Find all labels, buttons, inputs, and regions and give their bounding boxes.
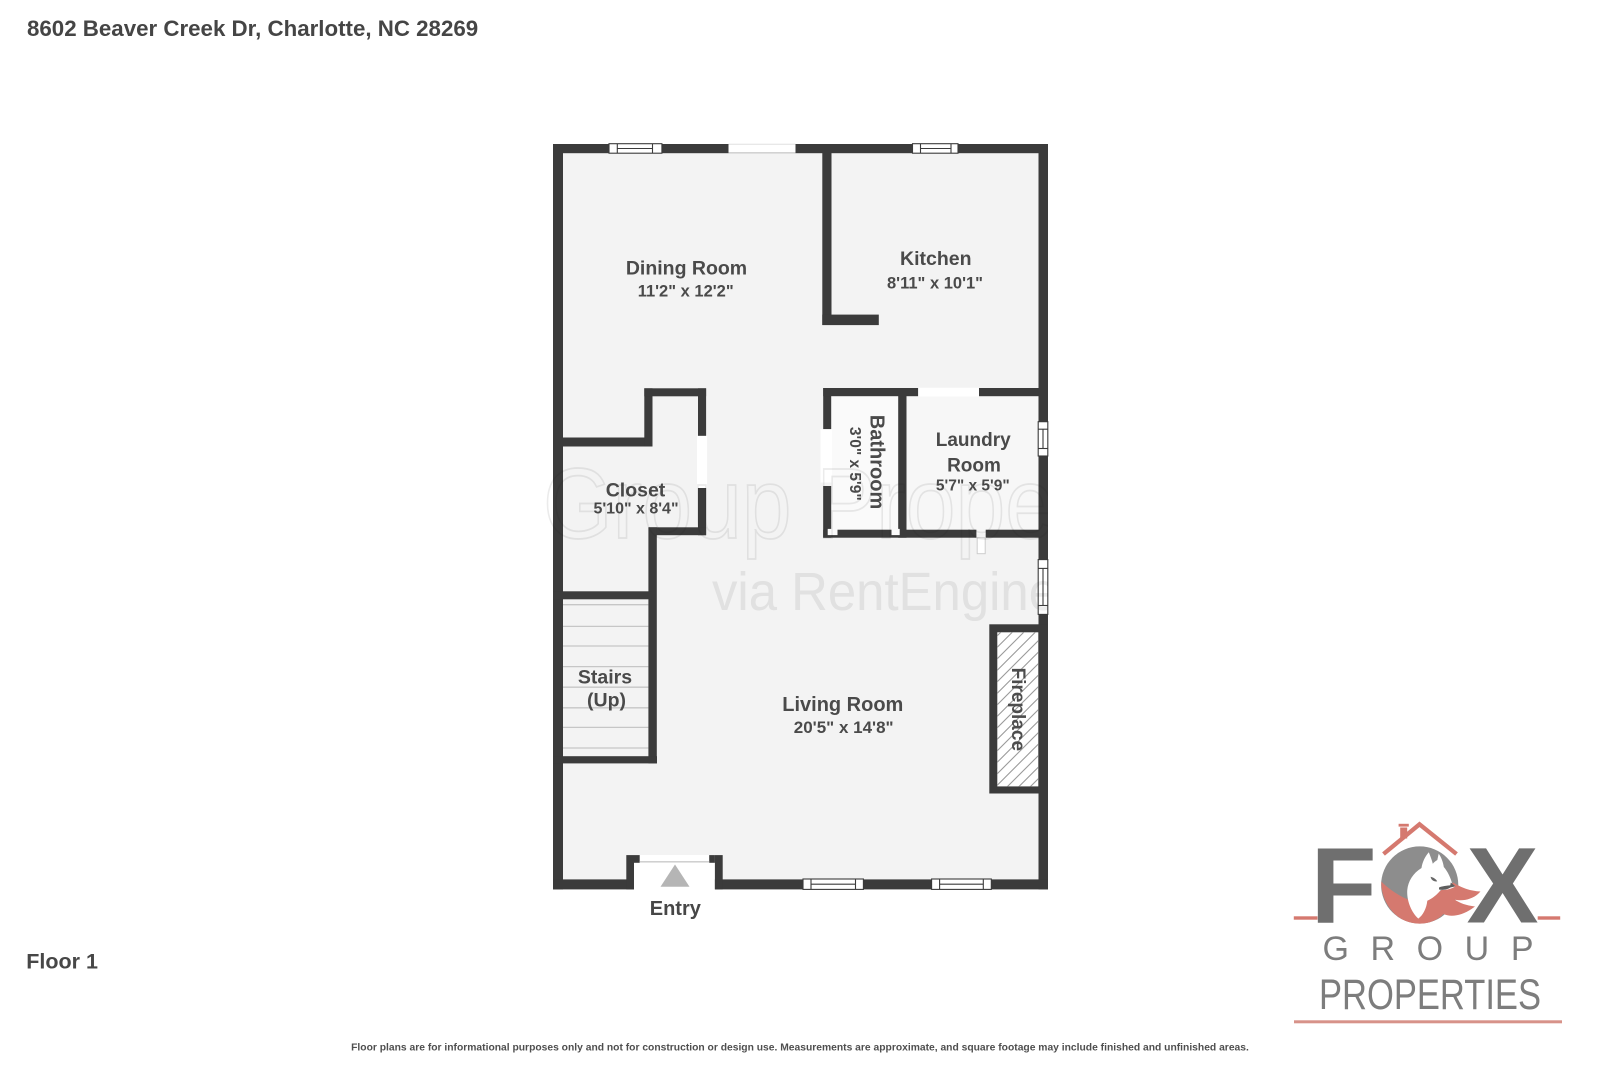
svg-text:PROPERTIES: PROPERTIES: [1319, 971, 1541, 1019]
svg-text:Kitchen: Kitchen: [900, 248, 972, 270]
svg-text:11'2" x 12'2": 11'2" x 12'2": [638, 283, 734, 301]
svg-text:8602 Beaver Creek Dr, Charlott: 8602 Beaver Creek Dr, Charlotte, NC 2826…: [27, 16, 478, 41]
svg-text:X: X: [1466, 825, 1538, 946]
svg-text:Entry: Entry: [650, 898, 702, 920]
svg-text:8'11" x 10'1": 8'11" x 10'1": [887, 274, 983, 292]
svg-text:Fireplace: Fireplace: [1007, 668, 1028, 751]
svg-text:Floor plans are for informatio: Floor plans are for informational purpos…: [351, 1043, 1249, 1054]
svg-text:Dining Room: Dining Room: [626, 258, 747, 280]
svg-text:Group Prope: Group Prope: [543, 448, 1055, 560]
svg-text:20'5" x 14'8": 20'5" x 14'8": [794, 718, 894, 737]
svg-text:Stairs: Stairs: [578, 666, 632, 688]
svg-text:Living Room: Living Room: [782, 694, 903, 716]
svg-text:(Up): (Up): [587, 690, 626, 712]
svg-text:via RentEngine: via RentEngine: [712, 562, 1057, 622]
svg-text:Floor 1: Floor 1: [26, 950, 98, 974]
svg-text:F: F: [1311, 825, 1377, 946]
